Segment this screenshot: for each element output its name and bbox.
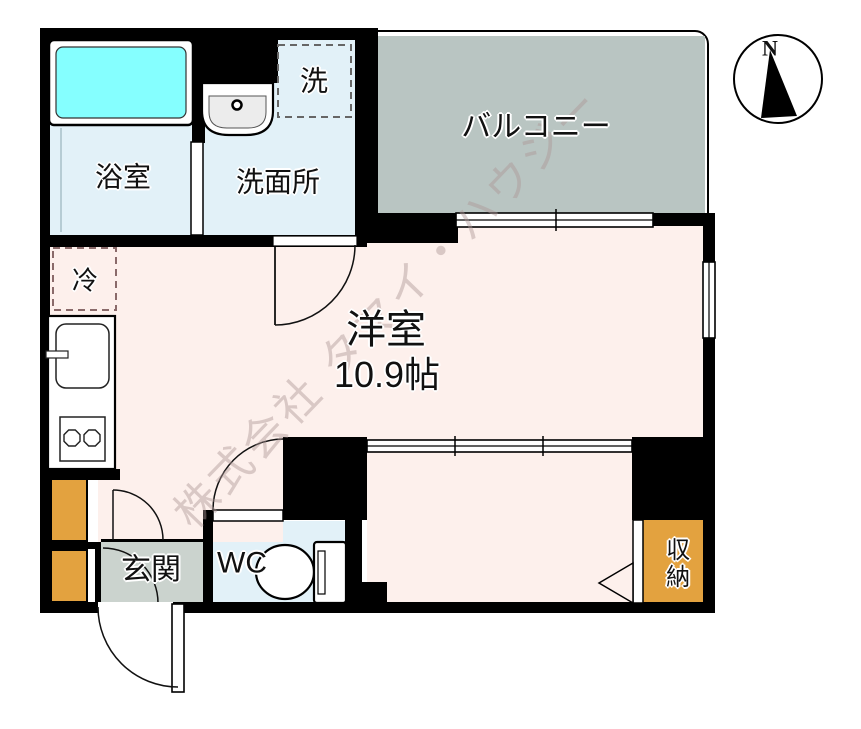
storage-label: 収納 [662,537,687,591]
washroom-label: 洗面所 [236,167,320,196]
wall-balcony-bottom-right [653,213,703,226]
bathroom-floor [50,40,192,235]
toilet-label: WC [217,547,267,579]
wall-kitchen-bottom [48,469,120,480]
main-room-size: 10.9帖 [334,356,440,394]
balcony-window [456,213,653,227]
entrance-label: 玄関 [121,554,181,586]
wall-right [703,213,715,613]
meter-box-upper [50,478,88,542]
wall-left [40,28,50,613]
wall-meterbox-divider [50,542,98,549]
floor-plan: 株式会社 タマイ・ハウジー 浴室 洗面所 洗 バルコニー 洋室 10.9帖 冷 … [0,0,861,729]
wall-washroom-top-thick [192,28,278,83]
wall-washroom-right [355,28,378,243]
compass-north-label: N [762,36,778,59]
front-door-arc [98,607,178,687]
main-room-floor-upper-right [458,226,703,243]
wall-wc-right [345,520,362,603]
front-door-leaf [172,604,184,692]
laundry-label: 洗 [300,66,328,95]
main-room-label: 洋室 [346,309,426,351]
meter-box-lower [50,549,88,603]
wall-washroom-bottom [40,235,367,247]
balcony-label: バルコニー [461,111,610,143]
wall-wc-column [283,437,367,520]
storage-door [633,520,643,603]
wall-bottom [40,602,715,613]
wall-storage-header [632,437,715,520]
lower-room-floor [367,441,633,603]
wall-bath-divider [192,83,205,143]
wall-entrance-left [95,542,101,603]
bathroom-door [191,142,203,235]
wall-balcony-bottom-left [365,213,458,243]
hall-floor [98,437,283,542]
wall-wc-left [203,510,213,603]
bathroom-label: 浴室 [95,162,151,191]
wall-lower-room-step [362,582,387,603]
fridge-label: 冷 [72,267,98,294]
wall-entrance-top-line [101,539,203,542]
